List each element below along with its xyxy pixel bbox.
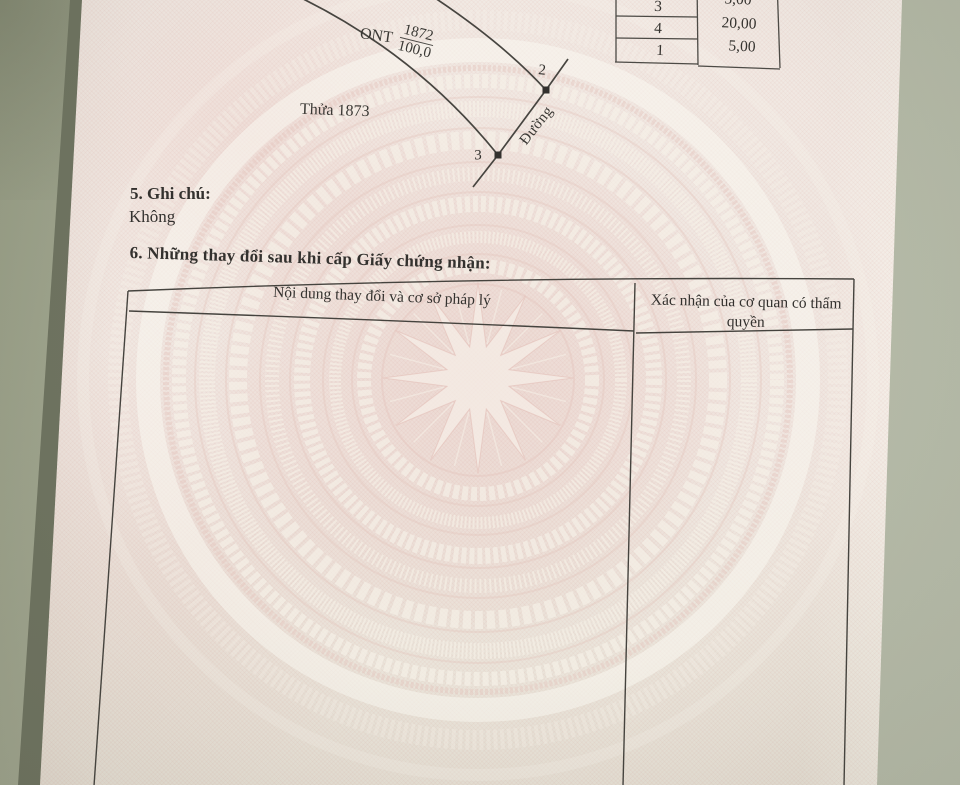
edge-table-length: 5,00	[724, 0, 752, 10]
certificate-photo: ONT 1872 100,0 Thửa 1873 2 3 Đường 3 4 1…	[0, 0, 960, 785]
land-type-label: ONT	[359, 25, 394, 47]
edge-table-rules	[615, 0, 780, 69]
point-marker-3	[495, 152, 502, 159]
point-marker-2	[543, 87, 550, 94]
edge-table-length: 5,00	[728, 37, 756, 56]
edge-table-length: 20,00	[721, 14, 757, 34]
changes-table-rules	[94, 279, 854, 785]
edge-table-vertex: 1	[656, 42, 665, 60]
section-5-value: Không	[129, 207, 175, 227]
ink-lines	[0, 0, 960, 785]
edge-table-vertex: 4	[654, 20, 663, 38]
adjacent-parcel-label: Thửa 1873	[300, 101, 370, 121]
section-5-heading: 5. Ghi chú:	[130, 184, 211, 204]
vertex-2-label: 2	[538, 62, 547, 80]
parcel-number-over-area: 1872 100,0	[396, 22, 436, 61]
changes-table-col2-header: Xác nhận của cơ quan có thẩm quyền	[643, 290, 849, 333]
edge-table-vertex: 3	[654, 0, 663, 16]
vertex-3-label: 3	[474, 148, 482, 165]
